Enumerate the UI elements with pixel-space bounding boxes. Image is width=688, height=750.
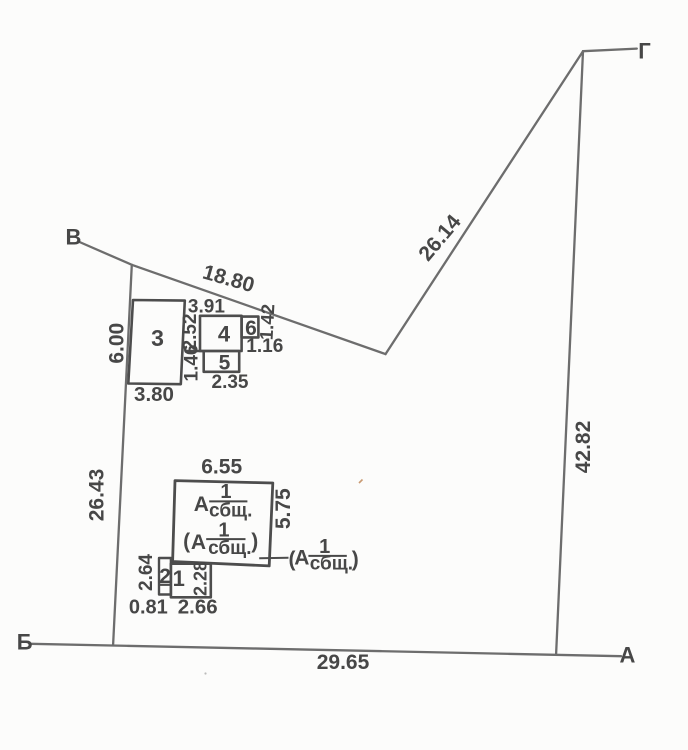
svg-text:3: 3 xyxy=(151,325,164,351)
svg-text:А: А xyxy=(294,547,309,570)
svg-text:А: А xyxy=(620,643,636,668)
svg-text:29.65: 29.65 xyxy=(317,651,370,674)
svg-text:): ) xyxy=(251,530,258,553)
svg-text:3.80: 3.80 xyxy=(134,383,174,406)
svg-text:2.66: 2.66 xyxy=(178,595,218,618)
svg-text:сбщ.: сбщ. xyxy=(208,538,251,559)
svg-text:сбщ.: сбщ. xyxy=(209,500,252,521)
svg-text:6.00: 6.00 xyxy=(105,323,128,364)
svg-text:1: 1 xyxy=(173,566,185,591)
svg-text:): ) xyxy=(352,548,359,571)
svg-text:А: А xyxy=(191,531,206,554)
svg-text:А: А xyxy=(194,493,209,516)
svg-text:26.43: 26.43 xyxy=(86,469,109,522)
svg-text:5: 5 xyxy=(219,352,231,375)
svg-text:2: 2 xyxy=(159,565,171,588)
svg-text:1.46: 1.46 xyxy=(182,345,203,382)
svg-text:В: В xyxy=(66,225,82,250)
svg-text:5.75: 5.75 xyxy=(272,488,295,529)
svg-text:(: ( xyxy=(183,530,190,553)
svg-text:4: 4 xyxy=(218,322,231,347)
svg-text:42.82: 42.82 xyxy=(572,421,595,474)
svg-text:2.35: 2.35 xyxy=(212,372,249,393)
svg-text:2.64: 2.64 xyxy=(136,554,157,591)
svg-text:1.16: 1.16 xyxy=(246,336,283,357)
svg-text:6.55: 6.55 xyxy=(201,455,242,478)
svg-text:Г: Г xyxy=(638,39,651,64)
svg-text:1.42: 1.42 xyxy=(256,303,279,340)
svg-text:сбщ.: сбщ. xyxy=(310,554,353,575)
svg-text:2.28: 2.28 xyxy=(190,561,210,596)
svg-text:0.81: 0.81 xyxy=(129,596,168,618)
svg-text:Б: Б xyxy=(17,630,33,655)
